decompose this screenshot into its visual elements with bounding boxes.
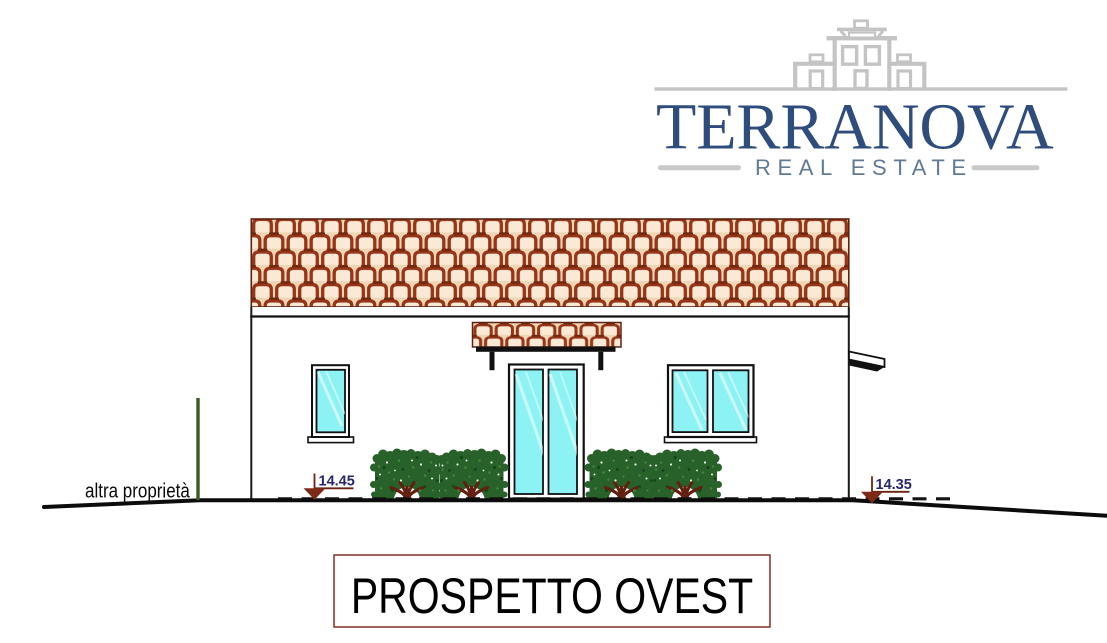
svg-text:altra proprietà: altra proprietà — [85, 479, 190, 502]
svg-text:PROSPETTO OVEST: PROSPETTO OVEST — [351, 568, 753, 624]
svg-text:REAL ESTATE: REAL ESTATE — [755, 155, 973, 180]
svg-text:14.35: 14.35 — [876, 477, 912, 493]
svg-text:14.45: 14.45 — [319, 473, 355, 489]
svg-text:TERRANOVA: TERRANOVA — [656, 91, 1054, 164]
